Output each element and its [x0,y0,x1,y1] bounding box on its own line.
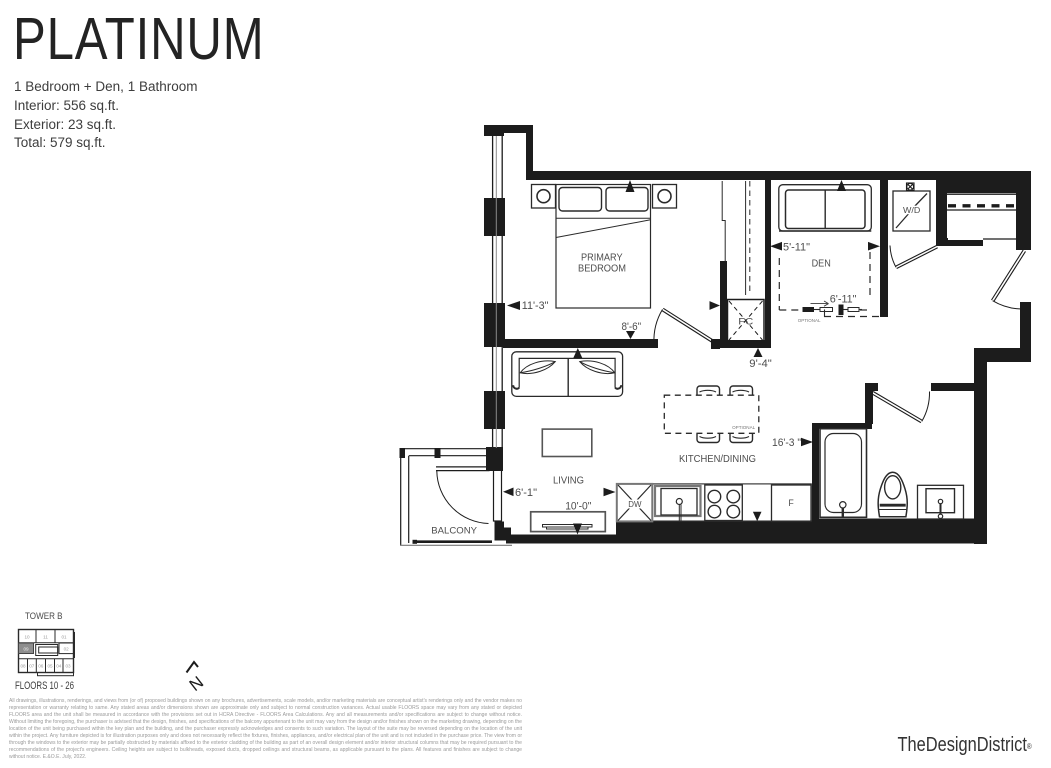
svg-text:5'-11": 5'-11" [783,242,810,254]
svg-text:OPTIONAL: OPTIONAL [798,318,821,324]
svg-text:10: 10 [24,635,30,640]
svg-text:LIVING: LIVING [553,476,584,487]
svg-text:10'-0": 10'-0" [565,501,591,513]
svg-text:6'-1": 6'-1" [515,487,537,499]
svg-text:07: 07 [29,664,35,669]
svg-text:05: 05 [47,664,53,669]
svg-text:01: 01 [61,635,67,640]
svg-text:BEDROOM: BEDROOM [578,264,626,275]
svg-text:09: 09 [23,647,29,652]
svg-text:11'-3": 11'-3" [522,300,549,312]
svg-text:04: 04 [56,664,62,669]
svg-text:FC: FC [738,317,753,328]
svg-text:11: 11 [43,635,48,640]
svg-text:N: N [186,673,207,696]
svg-text:6'-11": 6'-11" [830,294,857,306]
svg-text:DW: DW [628,499,641,509]
svg-text:16'-3 ": 16'-3 " [772,437,801,449]
svg-text:02: 02 [64,647,70,652]
svg-text:9'-4": 9'-4" [749,358,772,370]
svg-text:F: F [788,498,794,508]
svg-text:OPTIONAL: OPTIONAL [732,425,755,431]
svg-text:DEN: DEN [812,259,831,270]
svg-text:W/D: W/D [903,205,920,215]
svg-text:PRIMARY: PRIMARY [581,253,623,264]
svg-text:BALCONY: BALCONY [431,525,477,536]
svg-text:03: 03 [65,664,71,669]
svg-text:KITCHEN/DINING: KITCHEN/DINING [679,454,756,465]
svg-text:08: 08 [20,664,26,669]
svg-text:06: 06 [38,664,44,669]
